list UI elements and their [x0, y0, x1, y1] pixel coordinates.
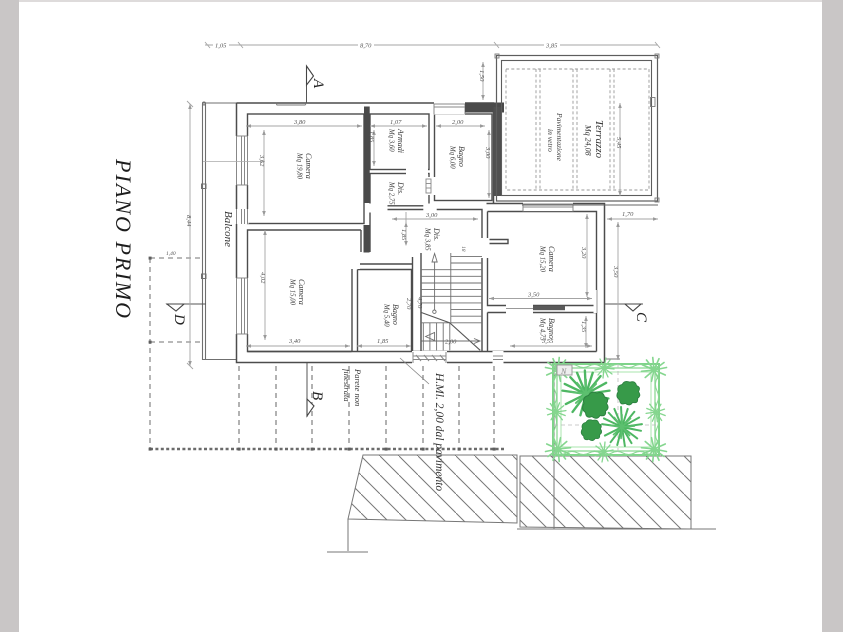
svg-text:3,50: 3,50 [612, 265, 619, 278]
svg-text:CameraMq 15,00: CameraMq 15,00 [289, 278, 307, 306]
svg-text:BagnoMq 5,40: BagnoMq 5,40 [383, 303, 401, 327]
svg-text:3,62: 3,62 [258, 154, 265, 167]
svg-text:B: B [309, 391, 325, 400]
svg-text:3,00: 3,00 [425, 212, 438, 219]
svg-text:3,55: 3,55 [541, 338, 554, 345]
svg-text:3,80: 3,80 [293, 119, 306, 126]
svg-text:18: 18 [460, 246, 466, 252]
svg-text:2,00: 2,00 [452, 119, 464, 126]
svg-text:1,05: 1,05 [215, 43, 227, 50]
svg-text:D: D [171, 313, 187, 325]
svg-text:Parete nonfinestrata: Parete nonfinestrata [342, 368, 363, 406]
svg-text:8,70: 8,70 [360, 43, 372, 50]
svg-text:1,35: 1,35 [580, 321, 587, 333]
svg-text:1,85: 1,85 [368, 131, 375, 143]
svg-text:3,40: 3,40 [288, 338, 301, 345]
svg-text:1,70: 1,70 [622, 211, 634, 218]
svg-text:3,85: 3,85 [545, 43, 558, 50]
svg-text:8,44: 8,44 [185, 215, 192, 227]
svg-text:2,70: 2,70 [405, 298, 412, 310]
svg-text:1,50: 1,50 [478, 70, 485, 82]
svg-text:BagnoMq 6,00: BagnoMq 6,00 [449, 145, 467, 169]
svg-text:3,50: 3,50 [527, 292, 540, 299]
svg-text:1,85: 1,85 [400, 229, 407, 241]
svg-text:C: C [633, 312, 649, 323]
svg-text:H.Ml. 2,00 dal pavimento: H.Ml. 2,00 dal pavimento [433, 372, 445, 491]
svg-text:1,07: 1,07 [390, 119, 402, 126]
svg-text:4,02: 4,02 [259, 272, 266, 284]
svg-text:3,20: 3,20 [580, 246, 587, 259]
svg-text:3,00: 3,00 [484, 146, 491, 159]
svg-text:TerrazzoMq 24,08: TerrazzoMq 24,08 [584, 120, 606, 159]
svg-text:2,00: 2,00 [445, 339, 457, 346]
svg-text:N: N [560, 367, 567, 376]
svg-text:A: A [310, 78, 326, 89]
svg-text:5,45: 5,45 [615, 137, 622, 149]
svg-text:1,40: 1,40 [166, 250, 176, 257]
svg-text:CameraMq 15,20: CameraMq 15,20 [539, 245, 557, 273]
svg-text:ArmadiMq 3,60: ArmadiMq 3,60 [388, 128, 406, 153]
svg-text:PIANO PRIMO: PIANO PRIMO [111, 158, 136, 320]
svg-text:4,70: 4,70 [416, 297, 423, 309]
svg-text:1,85: 1,85 [377, 338, 389, 345]
svg-text:Balcone: Balcone [222, 211, 234, 247]
svg-text:CameraMq 19,80: CameraMq 19,80 [296, 152, 314, 180]
